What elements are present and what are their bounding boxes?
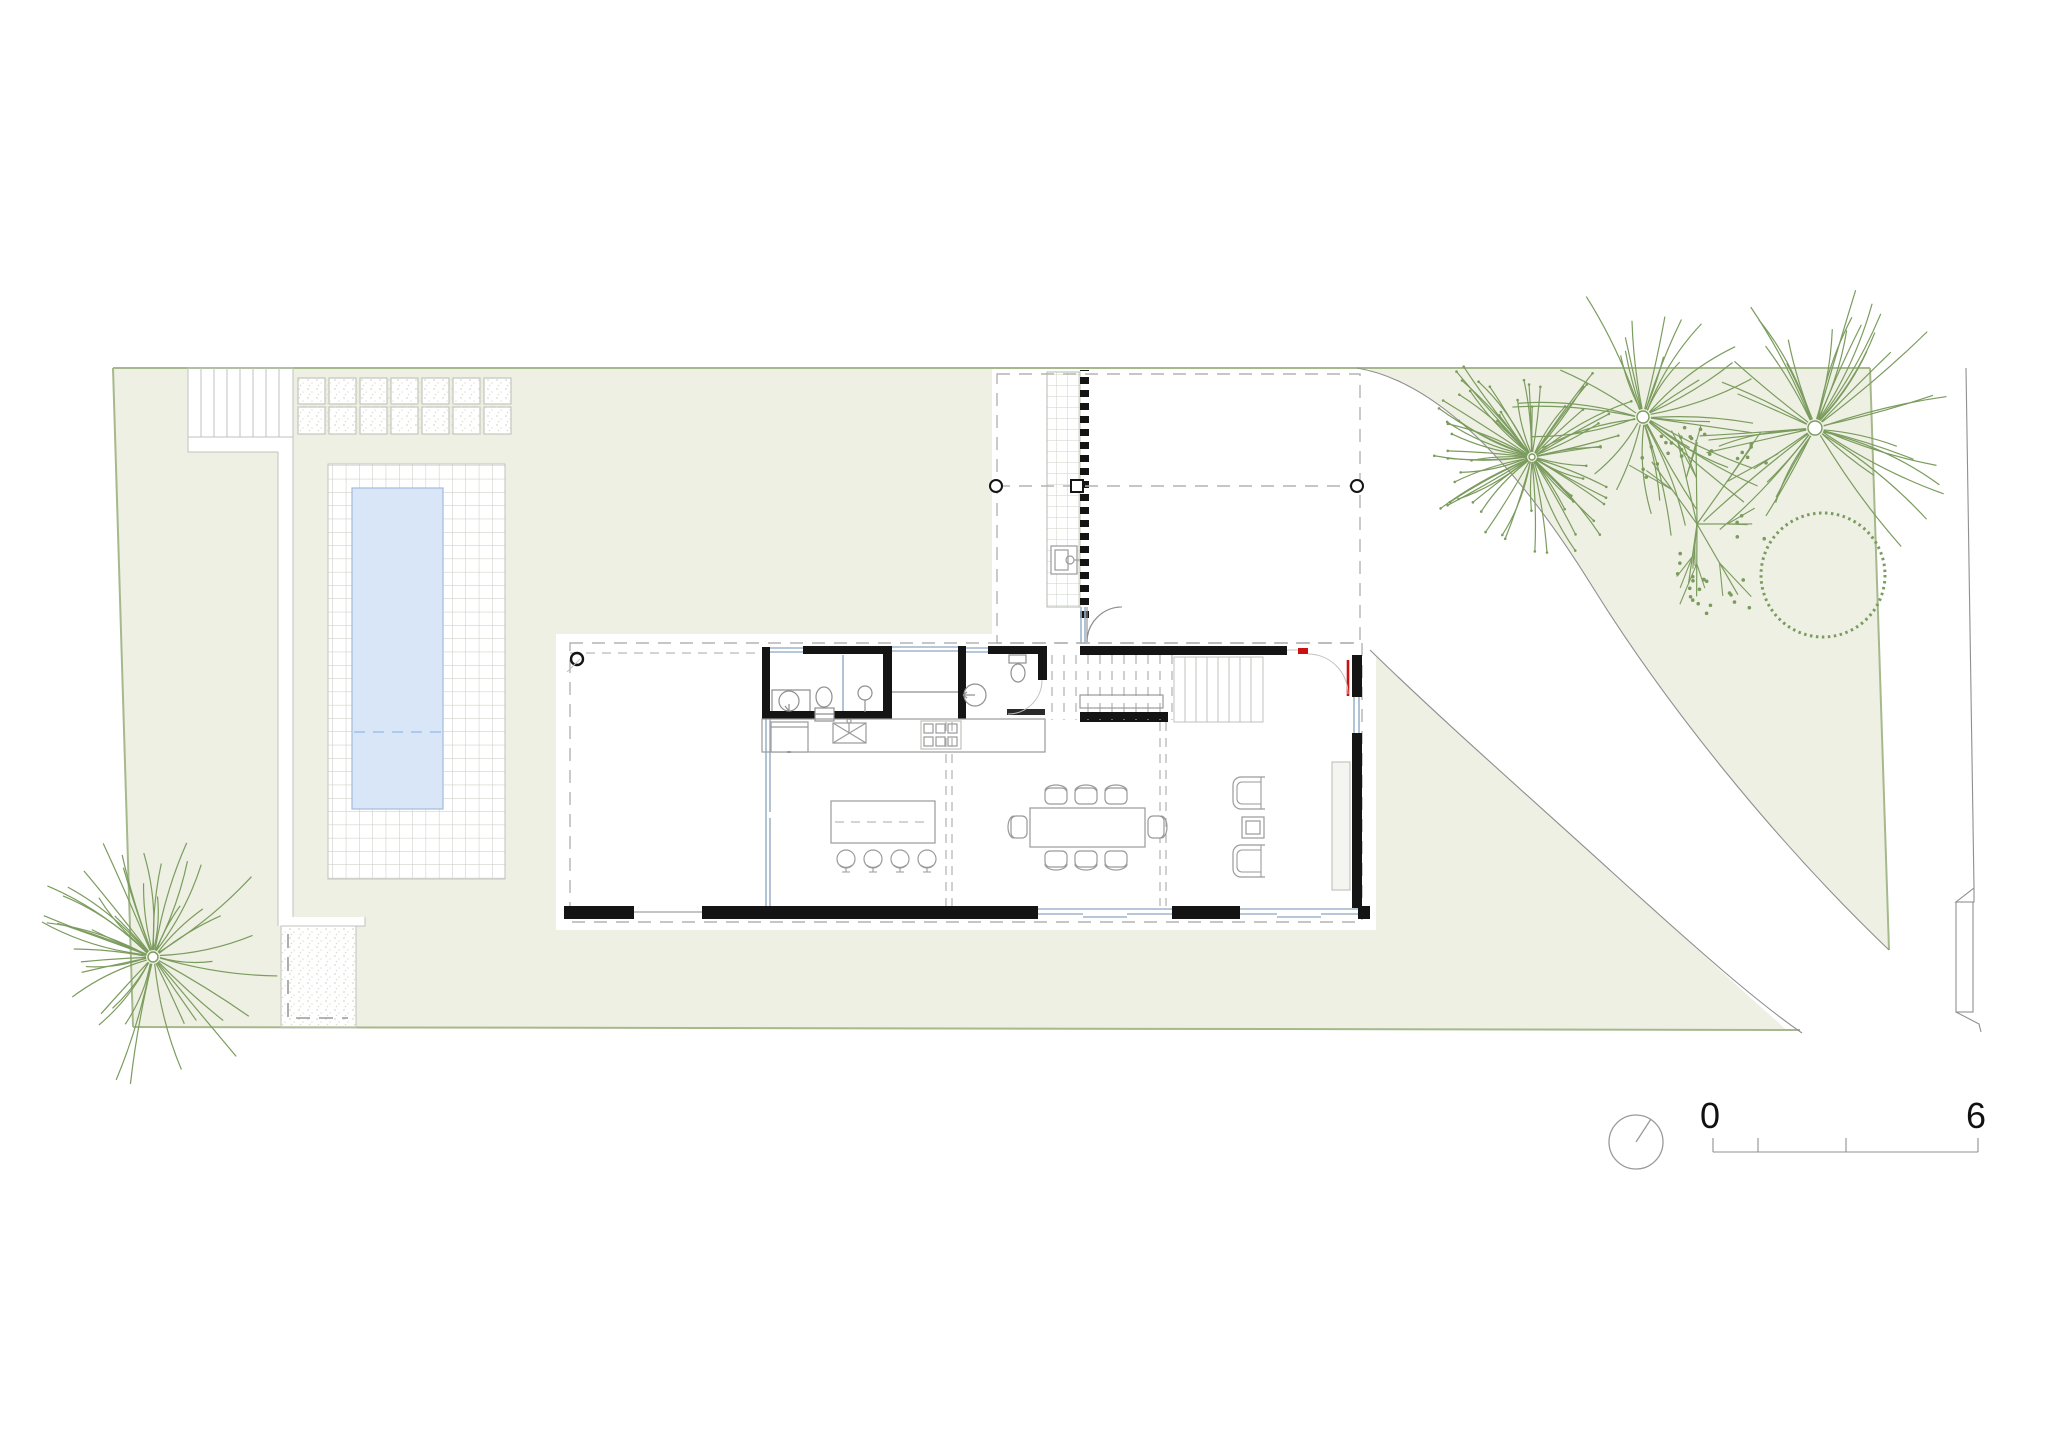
column-square-center [1071,480,1083,492]
column-round-east [1351,480,1363,492]
armchair [1233,777,1265,809]
dining-chair [1105,851,1127,870]
paving-slabs [298,378,511,434]
service-pad-texture [281,926,356,1028]
scale-bar: 0 6 [1700,1095,1986,1152]
column-round-west [990,480,1002,492]
corner-column [571,653,583,665]
outdoor-fixture [1051,546,1080,574]
scale-label-end: 6 [1966,1095,1986,1136]
hatched-edge-band [1080,370,1089,618]
dining-chair [1045,785,1067,804]
compass-needle [1636,1119,1651,1142]
swimming-pool [352,488,443,809]
wc-toilet [1011,664,1025,682]
entry-door-jamb-red [1298,648,1308,654]
dining-chair [1008,816,1027,838]
dining-chair [1105,785,1127,804]
kitchen-sink [833,719,866,743]
scale-label-start: 0 [1700,1095,1720,1136]
north-indicator [1609,1115,1663,1169]
site-plan-drawing: 0 6 [0,0,2048,1448]
dining-chair [1075,785,1097,804]
path-junction [278,917,365,926]
wc-cistern [1009,655,1026,663]
dining-chair [1075,851,1097,870]
side-path [278,437,293,917]
dining-chair [1148,816,1167,838]
dining-chair [1045,851,1067,870]
floor-plan-page: 0 6 [0,0,2048,1448]
fridge [771,722,808,752]
steps-landing [188,437,278,452]
street-edge [1956,368,1981,1032]
armchair [1233,845,1265,877]
sideboard [1332,762,1350,890]
side-table [1242,817,1264,838]
cooktop-6-burners [921,721,961,749]
